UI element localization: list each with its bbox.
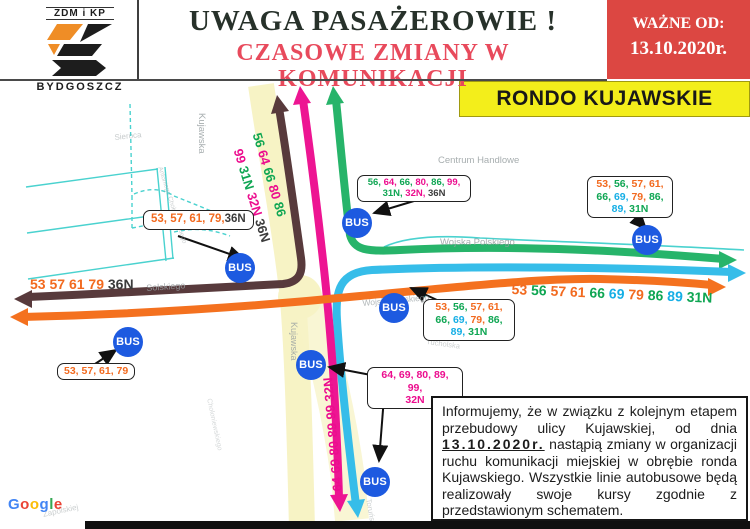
stop-label-east: 53, 56, 57, 61, 66, 69, 79, 86, 89, 31N xyxy=(587,176,673,218)
header-rule xyxy=(0,79,607,81)
valid-from-box: WAŻNE OD: 13.10.2020r. xyxy=(607,0,750,79)
stop-label-line: 53, 56, 57, 61, xyxy=(594,178,666,191)
stop-label-line: 53, 56, 57, 61, xyxy=(430,301,508,314)
bus-stop-marker-south-lower: BUS xyxy=(360,467,390,497)
stop-label-southwest: 53, 57, 61, 79 xyxy=(57,363,135,380)
stop-label-line: 89, 31N xyxy=(430,326,508,339)
notice-text-part1: Informujemy, że w związku z kolejnym eta… xyxy=(442,403,737,436)
stop-label-line: 66, 69, 79, 86, xyxy=(594,191,666,204)
stop-label-line: 64, 69, 80, 89, 99, xyxy=(374,369,456,394)
stop-label-north: 56, 64, 66, 80, 86, 99, 31N, 32N, 36N xyxy=(357,175,471,202)
valid-from-label: WAŻNE OD: xyxy=(607,15,750,33)
stop-label-line: 56, 64, 66, 80, 86, 99, xyxy=(364,177,464,188)
zdm-logo-text: ZDM i KP xyxy=(46,7,114,20)
street-label-kujawska: Kujawska xyxy=(196,113,207,154)
header-titles: UWAGA PASAŻEROWIE ! CZASOWE ZMIANY W KOM… xyxy=(139,0,607,80)
google-watermark: Google xyxy=(8,496,63,513)
bus-stop-marker-south-upper: BUS xyxy=(296,350,326,380)
stop-label-center: 53, 56, 57, 61, 66, 69, 79, 86, 89, 31N xyxy=(423,299,515,341)
bus-stop-marker-east: BUS xyxy=(632,225,662,255)
bus-stop-marker-southwest: BUS xyxy=(113,327,143,357)
bus-stop-marker-center: BUS xyxy=(379,293,409,323)
notice-date: 13.10.2020r. xyxy=(442,436,545,452)
stop-label-line: 53, 57, 61, 79,36N xyxy=(151,213,246,227)
notice-box: Informujemy, że w związku z kolejnym eta… xyxy=(431,396,748,521)
zdm-logo: ZDM i KP BYDGOSZCZ xyxy=(24,3,136,95)
stop-label-west: 53, 57, 61, 79,36N xyxy=(143,210,254,230)
page-subtitle: CZASOWE ZMIANY W KOMUNIKACJI xyxy=(139,37,607,92)
street-label-wojska-polskiego: Wojska Polskiego xyxy=(440,237,515,248)
bus-stop-marker-west: BUS xyxy=(225,253,255,283)
transit-notice-poster: ZDM i KP BYDGOSZCZ UWAGA PASAŻEROWIE ! C… xyxy=(0,0,750,529)
place-label-centrum-handlowe: Centrum Handlowe xyxy=(438,155,519,166)
bottom-scan-edge xyxy=(85,521,750,529)
street-label-kujawska-south: Kujawska xyxy=(289,322,299,361)
zdm-logo-city: BYDGOSZCZ xyxy=(34,79,125,93)
stop-label-line: 66, 69, 79, 86, xyxy=(430,314,508,327)
valid-from-date: 13.10.2020r. xyxy=(607,38,750,60)
stop-label-line: 31N, 32N, 36N xyxy=(364,188,464,199)
stop-label-line: 53, 57, 61, 79 xyxy=(64,365,128,378)
route-numbers-west: 53 57 61 79 36N xyxy=(30,276,134,292)
stop-label-line: 89, 31N xyxy=(594,203,666,216)
bus-stop-marker-north: BUS xyxy=(342,208,372,238)
page-title: UWAGA PASAŻEROWIE ! xyxy=(139,0,607,37)
zdm-logo-mark xyxy=(47,23,113,77)
